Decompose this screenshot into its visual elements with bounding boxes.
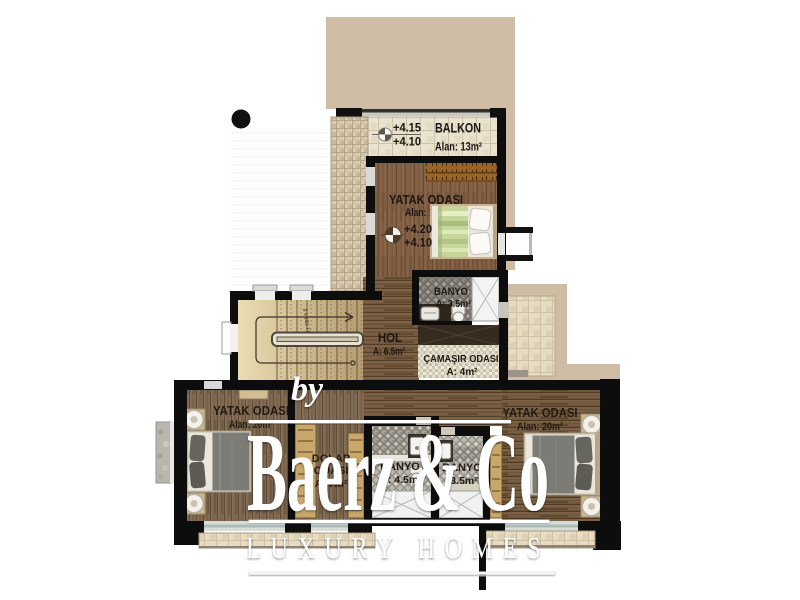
svg-text:by: by (291, 371, 324, 408)
svg-text:+4.15: +4.15 (393, 123, 422, 135)
svg-text:A: 6.5m²: A: 6.5m² (373, 346, 405, 358)
svg-text:BALKON: BALKON (435, 121, 481, 136)
svg-text:HOL: HOL (378, 331, 402, 345)
svg-text:A: 3.5m²: A: 3.5m² (436, 299, 472, 310)
svg-text:ÇAMAŞIR ODASI: ÇAMAŞIR ODASI (424, 353, 499, 365)
svg-text:+4.10: +4.10 (393, 137, 421, 149)
svg-text:Alan: 13m²: Alan: 13m² (435, 140, 482, 154)
svg-text:A: 4m²: A: 4m² (447, 366, 478, 378)
svg-text:Baerz & Co: Baerz & Co (247, 411, 549, 535)
svg-text:BANYO: BANYO (434, 286, 468, 298)
svg-text:+4.20: +4.20 (404, 224, 432, 236)
svg-text:LUXURY HOMES: LUXURY HOMES (246, 530, 550, 565)
svg-text:+4.10: +4.10 (404, 238, 432, 250)
